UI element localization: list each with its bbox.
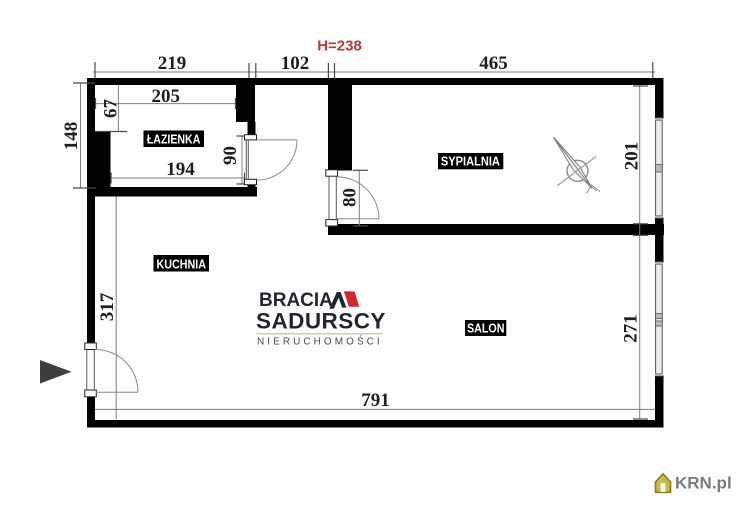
svg-text:102: 102 (281, 53, 310, 74)
svg-text:205: 205 (152, 86, 181, 107)
svg-text:SALON: SALON (467, 321, 505, 336)
svg-text:80: 80 (340, 188, 361, 207)
svg-text:791: 791 (361, 390, 390, 411)
svg-text:SYPIALNIA: SYPIALNIA (441, 153, 501, 168)
svg-text:90: 90 (220, 146, 241, 165)
svg-text:KRN.pl: KRN.pl (675, 474, 732, 493)
svg-text:H=238: H=238 (317, 38, 362, 55)
svg-text:194: 194 (166, 159, 195, 180)
svg-text:219: 219 (158, 53, 187, 74)
svg-text:148: 148 (61, 122, 82, 151)
svg-text:KUCHNIA: KUCHNIA (157, 256, 207, 271)
svg-text:ŁAZIENKA: ŁAZIENKA (147, 132, 201, 147)
svg-text:67: 67 (101, 99, 122, 119)
svg-text:317: 317 (97, 292, 118, 321)
svg-text:SADURSCY: SADURSCY (256, 308, 386, 333)
svg-text:271: 271 (621, 314, 642, 343)
svg-text:201: 201 (621, 142, 642, 171)
svg-text:465: 465 (479, 53, 508, 74)
svg-text:NIERUCHOMOŚCI: NIERUCHOMOŚCI (257, 335, 383, 348)
